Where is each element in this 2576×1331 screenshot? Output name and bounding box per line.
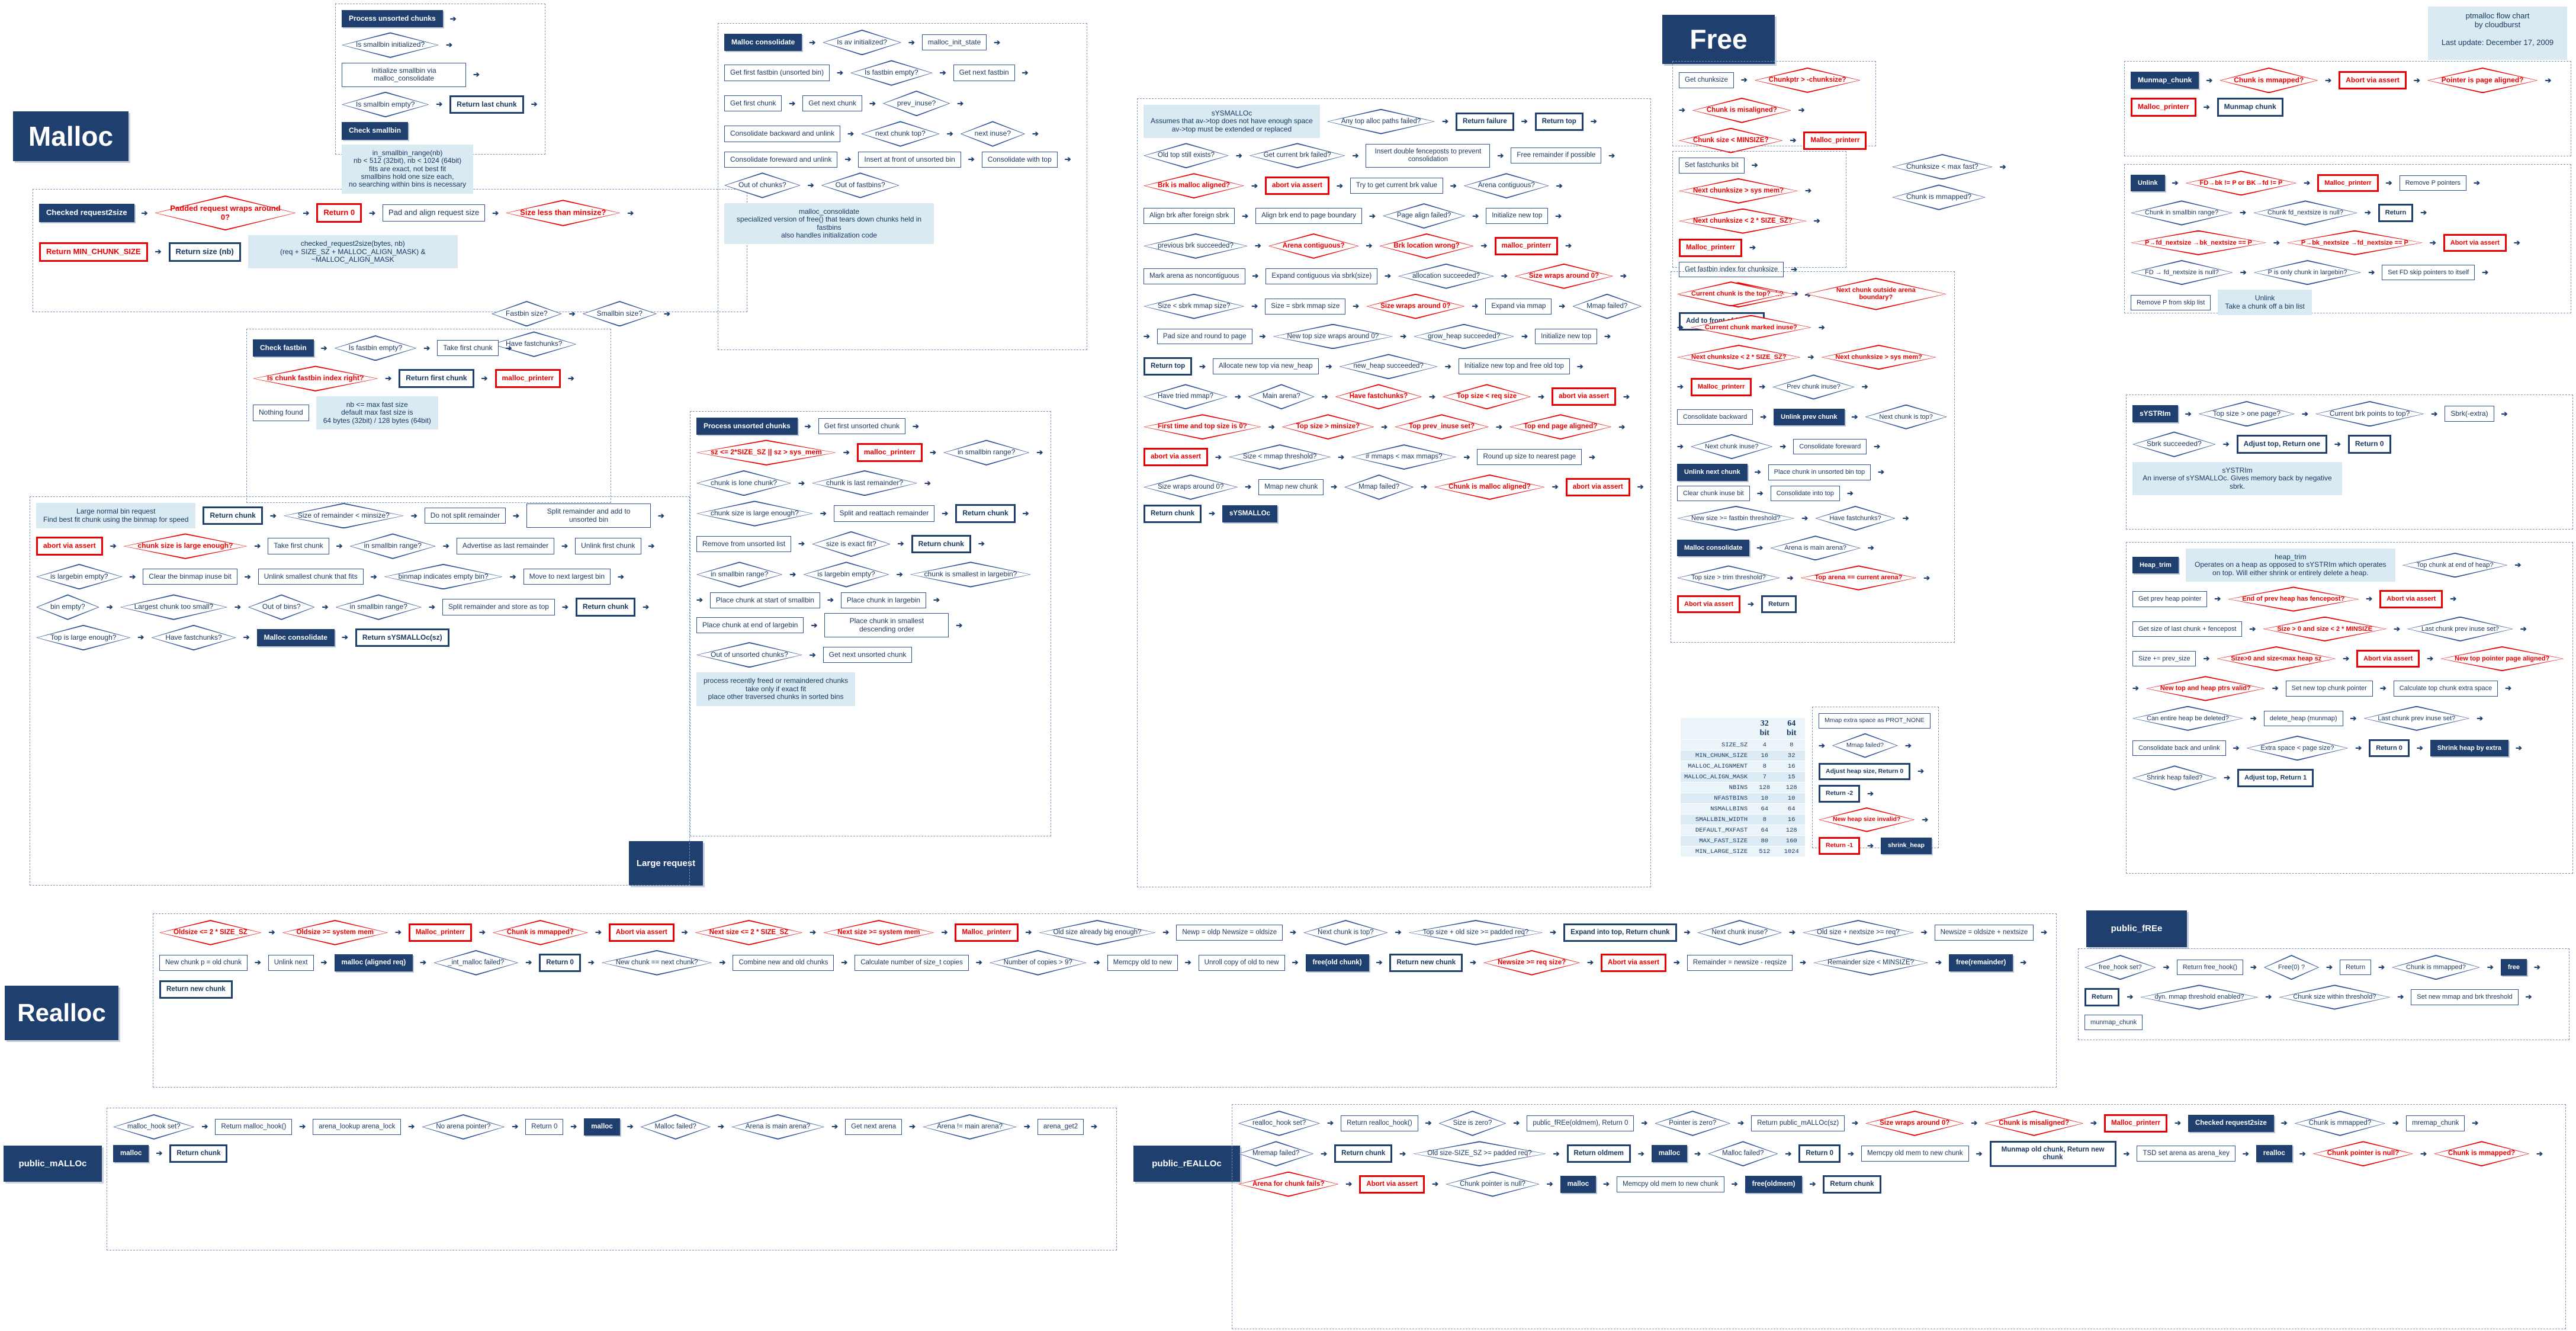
flow-arrow-icon: ➔ [1780, 442, 1786, 451]
flow-arrow-icon: ➔ [2514, 238, 2520, 248]
flow-arrow-icon: ➔ [1694, 1149, 1701, 1159]
decision-diamond-realloc-hook-set: realloc_hook set? [1238, 1111, 1320, 1136]
process-node-mmap-new-chunk: Mmap new chunk [1258, 479, 1324, 495]
flow-arrow-icon: ➔ [1976, 1149, 1983, 1159]
flow-arrow-icon: ➔ [1587, 958, 1594, 967]
subroutine-node-malloc-consolidate: Malloc consolidate [1677, 540, 1749, 556]
flow-arrow-icon: ➔ [481, 374, 488, 383]
flow-arrow-icon: ➔ [1215, 453, 1222, 462]
flow-arrow-icon: ➔ [1450, 181, 1457, 191]
terminal-node-return-chunk: Return chunk [1144, 505, 1202, 523]
constants-table-body: SIZE_SZ48MIN_CHUNK_SIZE1632MALLOC_ALIGNM… [1681, 740, 1805, 857]
flow-arrow-icon: ➔ [810, 650, 816, 660]
process-node-initialize-smallbin-via-malloc-consolida: Initialize smallbin via malloc_consolida… [342, 63, 466, 87]
process-node-place-chunk-in-smallest-descending-order: Place chunk in smallest descending order [824, 613, 949, 637]
decision-diamond-is-av-initialized: Is av initialized? [823, 30, 901, 55]
flow-arrow-icon: ➔ [1623, 392, 1630, 402]
constants-table-row: SMALLBIN_WIDTH816 [1681, 814, 1805, 825]
decision-diamond-size-sbrk-mmap-size: Size < sbrk mmap size? [1144, 294, 1244, 319]
banner-public-free-title: public_fREe [2086, 910, 2187, 947]
error-decision-diamond-brk-location-wrong: Brk location wrong? [1379, 233, 1473, 259]
error-decision-diamond-chunk-size-is-large-enough: chunk size is large enough? [124, 533, 248, 559]
flow-arrow-icon: ➔ [2392, 1118, 2399, 1128]
flow-arrow-icon: ➔ [924, 479, 931, 488]
note-box-sysmalloc-assumes-that-av-top-does-not-h: sYSMALLOc Assumes that av->top does not … [1144, 105, 1320, 138]
decision-diamond-smallbin-size: Smallbin size? [583, 301, 657, 326]
flow-arrow-icon: ➔ [588, 958, 595, 967]
flow-arrow-icon: ➔ [235, 602, 241, 612]
subroutine-node-free-oldmem: free(oldmem) [1745, 1176, 1803, 1193]
terminal-node-return-new-chunk: Return new chunk [159, 980, 233, 999]
process-node-initialize-new-top-and-free-old-top: Initialize new top and free old top [1459, 358, 1570, 374]
flowchart-canvas: ptmalloc flow chart by cloudburst Last u… [0, 0, 2576, 1331]
process-node-get-next-arena: Get next arena [845, 1119, 902, 1135]
flow-arrow-icon: ➔ [1923, 573, 1930, 583]
flow-arrow-icon: ➔ [2185, 409, 2192, 419]
flow-arrow-icon: ➔ [336, 541, 343, 551]
flow-arrow-icon: ➔ [1620, 271, 1627, 281]
terminal-node-return-chunk: Return chunk [955, 504, 1015, 522]
cluster-malloc-dispatch: Fastbin size?➔Smallbin size?➔Have fastch… [486, 295, 746, 332]
decision-diamond-main-arena: Main arena? [1248, 384, 1315, 409]
flow-arrow-icon: ➔ [2334, 440, 2341, 449]
flow-arrow-icon: ➔ [1852, 412, 1858, 422]
flow-arrow-icon: ➔ [1752, 161, 1758, 170]
cluster-realloc-flow: Oldsize <= 2 * SIZE_SZ➔Oldsize >= system… [153, 913, 2057, 1088]
process-node-move-to-next-largest-bin: Move to next largest bin [523, 569, 611, 585]
flow-arrow-icon: ➔ [2366, 594, 2372, 604]
decision-diamond-have-tried-mmap: Have tried mmap? [1144, 384, 1228, 409]
decision-diamond-chunk-is-mmapped: Chunk is mmapped? [1892, 184, 1986, 210]
flow-arrow-icon: ➔ [1260, 332, 1266, 341]
flow-arrow-icon: ➔ [2090, 1118, 2097, 1128]
flow-arrow-icon: ➔ [2272, 684, 2279, 693]
error-decision-diamond-new-top-and-heap-ptrs-valid: New top and heap ptrs valid? [2146, 676, 2265, 701]
error-decision-diamond-size-wraps-around-0: Size wraps around 0? [1515, 264, 1613, 289]
flow-arrow-icon: ➔ [1785, 1149, 1791, 1159]
decision-diamond-no-arena-pointer: No arena pointer? [422, 1114, 505, 1140]
process-node-public-free-oldmem-return-0: public_fREe(oldmem), Return 0 [1527, 1115, 1634, 1131]
flow-arrow-icon: ➔ [1935, 958, 1942, 967]
decision-diamond-malloc-hook-set: malloc_hook set? [113, 1114, 195, 1140]
flow-arrow-icon: ➔ [789, 99, 795, 108]
flow-arrow-icon: ➔ [510, 572, 516, 582]
flow-arrow-icon: ➔ [2350, 714, 2357, 723]
flow-arrow-icon: ➔ [1550, 928, 1556, 937]
error-node-return-min-chunk-size: Return MIN_CHUNK_SIZE [39, 242, 148, 262]
flow-arrow-icon: ➔ [1787, 573, 1794, 583]
constant-value: 128 [1751, 782, 1778, 793]
error-decision-diamond-sz-2-size-sz-sz-sys-mem: sz <= 2*SIZE_SZ || sz > sys_mem [696, 440, 836, 465]
decision-diamond-fd-fd-nextsize-is-null: FD → fd_nextsize is null? [2131, 260, 2233, 285]
decision-diamond-chunk-is-lone-chunk: chunk is lone chunk? [696, 470, 791, 496]
flow-arrow-icon: ➔ [2430, 238, 2436, 248]
flow-arrow-icon: ➔ [837, 68, 843, 78]
flow-arrow-icon: ➔ [1577, 362, 1583, 371]
flow-arrow-icon: ➔ [1251, 302, 1258, 311]
note-box-systrim-an-inverse-of-sysmalloc-gives-me: sYSTRIm An inverse of sYSMALLOc. Gives m… [2132, 462, 2342, 495]
process-node-get-size-of-last-chunk-fencepost: Get size of last chunk + fencepost [2132, 621, 2242, 637]
flow-arrow-icon: ➔ [2431, 409, 2437, 419]
error-node-abort-via-assert: abort via assert [1552, 387, 1616, 406]
flow-arrow-icon: ➔ [1921, 928, 1928, 937]
terminal-node-return-2: Return -2 [1819, 785, 1860, 803]
flow-arrow-icon: ➔ [2536, 1149, 2543, 1159]
flow-arrow-icon: ➔ [2397, 992, 2404, 1002]
flow-arrow-icon: ➔ [1209, 509, 1215, 518]
flow-arrow-icon: ➔ [1552, 482, 1559, 492]
constant-value: 64 [1751, 804, 1778, 814]
subroutine-node-free: free [2501, 959, 2527, 976]
error-decision-diamond-chunk-size-minsize: Chunk size < MINSIZE? [1679, 128, 1782, 153]
constant-value: 160 [1778, 836, 1805, 846]
decision-diamond-have-fastchunks: Have fastchunks? [151, 625, 236, 650]
terminal-node-return-0: Return 0 [539, 954, 581, 972]
terminal-node-return-chunk: Return chunk [576, 598, 635, 616]
flow-arrow-icon: ➔ [913, 422, 919, 431]
cluster-free-checks: Get chunksize➔Chunkptr > -chunksize?➔Chu… [1672, 61, 1876, 146]
error-decision-diamond-oldsize-system-mem: Oldsize >= system mem [282, 920, 388, 945]
decision-diamond-mmaps-max-mmaps: # mmaps < max mmaps? [1351, 444, 1456, 470]
decision-diamond-last-chunk-prev-inuse-set: Last chunk prev inuse set? [2363, 706, 2469, 731]
error-decision-diamond-end-of-prev-heap-has-fencepost: End of prev heap has fencepost? [2228, 586, 2359, 611]
decision-diamond-int-malloc-failed: _int_malloc failed? [433, 950, 518, 976]
error-decision-diamond-size-wraps-around-0: Size wraps around 0? [1865, 1111, 1964, 1136]
flow-arrow-icon: ➔ [525, 958, 532, 967]
flow-arrow-icon: ➔ [1497, 151, 1504, 161]
decision-diamond-sbrk-succeeded: Sbrk succeeded? [2132, 431, 2216, 457]
decision-diamond-size-is-zero: Size is zero? [1439, 1111, 1507, 1136]
error-decision-diamond-top-end-page-aligned: Top end page aligned? [1509, 414, 1611, 440]
terminal-node-return-first-chunk: Return first chunk [399, 369, 474, 387]
decision-diamond-top-size-trim-threshold: Top size > trim threshold? [1677, 565, 1780, 590]
flow-arrow-icon: ➔ [908, 38, 915, 47]
process-node-round-up-size-to-nearest-page: Round up size to nearest page [1477, 449, 1582, 465]
process-node-get-first-fastbin-unsorted-bin: Get first fastbin (unsorted bin) [724, 65, 830, 81]
error-decision-diamond-next-chunksize-sys-mem: Next chunksize > sys mem? [1821, 345, 1936, 370]
terminal-node-return-chunk: Return chunk [203, 506, 262, 525]
process-node-remove-p-pointers: Remove P pointers [2400, 175, 2466, 191]
flow-arrow-icon: ➔ [2163, 963, 2170, 972]
terminal-node-return-chunk: Return chunk [1334, 1144, 1392, 1163]
terminal-node-return-chunk: Return chunk [1823, 1175, 1881, 1194]
process-node-return: Return [2340, 960, 2371, 975]
flow-arrow-icon: ➔ [1559, 302, 1565, 311]
banner-malloc-title: Malloc [13, 111, 129, 161]
flow-arrow-icon: ➔ [255, 958, 261, 967]
constants-table-row: NFASTBINS1010 [1681, 793, 1805, 804]
flow-arrow-icon: ➔ [1819, 741, 1825, 751]
cluster-munmap-chunk: Munmap_chunk➔Chunk is mmapped?➔Abort via… [2124, 61, 2571, 156]
error-decision-diamond-new-top-pointer-page-aligned: New top pointer page aligned? [2440, 646, 2564, 671]
constant-value: 15 [1778, 772, 1805, 782]
flow-arrow-icon: ➔ [2299, 1149, 2306, 1159]
flow-arrow-icon: ➔ [618, 572, 624, 582]
error-node-abort-via-assert: Abort via assert [2443, 234, 2507, 252]
decision-diamond-arena-main-arena: Arena != main arena? [923, 1114, 1017, 1140]
flow-arrow-icon: ➔ [110, 541, 117, 551]
process-node-return-malloc-hook: Return malloc_hook() [215, 1119, 292, 1135]
terminal-node-return: Return [2378, 204, 2413, 222]
terminal-node-return-size-nb: Return size (nb) [169, 242, 241, 262]
flow-arrow-icon: ➔ [789, 570, 796, 579]
subroutine-node-checked-request2size: Checked request2size [39, 204, 134, 222]
flow-arrow-icon: ➔ [2378, 963, 2385, 972]
process-node-unroll-copy-of-old-to-new: Unroll copy of old to new [1199, 955, 1285, 971]
flow-arrow-icon: ➔ [1185, 958, 1191, 967]
flow-arrow-icon: ➔ [1290, 928, 1296, 937]
process-node-advertise-as-last-remainder: Advertise as last remainder [457, 538, 554, 554]
process-node-consolidate-foreward: Consolidate foreward [1793, 439, 1867, 454]
flow-arrow-icon: ➔ [2000, 162, 2006, 172]
flow-arrow-icon: ➔ [1737, 1118, 1744, 1128]
error-decision-diamond-chunk-is-mmapped: Chunk is mmapped? [493, 920, 588, 945]
process-node-get-next-unsorted-chunk: Get next unsorted chunk [823, 647, 913, 663]
flow-arrow-icon: ➔ [2514, 560, 2521, 570]
constant-value: 64 [1751, 825, 1778, 836]
flow-arrow-icon: ➔ [1917, 766, 1924, 776]
terminal-node-return-new-chunk: Return new chunk [1389, 954, 1463, 972]
constants-table-col-header: 64 bit [1778, 718, 1805, 740]
terminal-node-adjust-top-return-one: Adjust top, Return one [2237, 435, 2327, 453]
decision-diamond-largest-chunk-too-small: Largest chunk too small? [120, 594, 227, 620]
note-box-checked-request2size-bytes-nb-req-size-s: checked_request2size(bytes, nb) (req + S… [248, 235, 458, 268]
process-node-get-first-unsorted-chunk: Get first unsorted chunk [818, 418, 905, 434]
subroutine-node-unlink-next-chunk: Unlink next chunk [1677, 464, 1748, 480]
flow-arrow-icon: ➔ [947, 129, 953, 139]
terminal-node-return-top: Return top [1144, 357, 1192, 376]
constant-value: 8 [1751, 761, 1778, 772]
flow-arrow-icon: ➔ [321, 344, 327, 353]
decision-diamond-chunk-is-mmapped: Chunk is mmapped? [2295, 1111, 2385, 1136]
flow-arrow-icon: ➔ [2020, 958, 2026, 967]
error-node-malloc-printerr: Malloc_printerr [1679, 239, 1742, 257]
process-node-place-chunk-at-start-of-smallbin: Place chunk at start of smallbin [710, 592, 820, 608]
error-node-abort-via-assert: Abort via assert [2339, 71, 2407, 89]
flow-arrow-icon: ➔ [2204, 102, 2210, 112]
flow-arrow-icon: ➔ [1867, 841, 1874, 851]
flow-arrow-icon: ➔ [1874, 442, 1880, 451]
constant-value: 1024 [1778, 846, 1805, 857]
error-decision-diamond-padded-request-wraps-around-0: Padded request wraps around 0? [155, 195, 295, 230]
cluster-check-fastbin: Check fastbin➔Is fastbin empty?➔Take fir… [246, 329, 611, 503]
flow-arrow-icon: ➔ [1679, 105, 1685, 115]
flow-arrow-icon: ➔ [1790, 136, 1796, 145]
process-node-split-remainder-and-add-to-unsorted-bin: Split remainder and add to unsorted bin [526, 503, 651, 528]
cluster-checked-request2size: Checked request2size➔Padded request wrap… [33, 189, 747, 312]
constants-table-row: NSMALLBINS6464 [1681, 804, 1805, 814]
constant-name: NFASTBINS [1681, 793, 1751, 804]
process-node-delete-heap-munmap: delete_heap (munmap) [2264, 711, 2343, 726]
error-decision-diamond-size-0-and-size-2-minsize: Size > 0 and size < 2 * MINSIZE [2263, 617, 2387, 642]
flow-arrow-icon: ➔ [1553, 1149, 1560, 1159]
decision-diamond-next-chunk-top: next chunk top? [861, 121, 940, 146]
flow-arrow-icon: ➔ [627, 1122, 634, 1131]
flow-arrow-icon: ➔ [1618, 422, 1625, 432]
credit-note: ptmalloc flow chart by cloudburst Last u… [2428, 7, 2567, 60]
terminal-node-return-sysmalloc-sz: Return sYSMALLOc(sz) [355, 628, 449, 647]
decision-diamond-malloc-failed: Malloc failed? [641, 1114, 711, 1140]
flow-arrow-icon: ➔ [978, 539, 985, 549]
decision-diamond-new-chunk-next-chunk: New chunk == next chunk? [602, 950, 712, 976]
decision-diamond-fastbin-size: Fastbin size? [492, 301, 562, 326]
subroutine-node-malloc: malloc [584, 1118, 619, 1136]
flow-arrow-icon: ➔ [1589, 453, 1595, 462]
flow-arrow-icon: ➔ [942, 928, 948, 937]
decision-diamond-chunk-in-smallbin-range: Chunk in smallbin range? [2131, 200, 2233, 225]
flow-arrow-icon: ➔ [811, 621, 817, 630]
decision-diamond-current-brk-points-to-top: Current brk points to top? [2315, 401, 2424, 426]
flow-arrow-icon: ➔ [2365, 208, 2371, 217]
decision-diamond-mremap-failed: Mremap failed? [1238, 1141, 1313, 1166]
flow-arrow-icon: ➔ [1868, 543, 1874, 553]
flow-arrow-icon: ➔ [1591, 117, 1597, 126]
decision-diamond-next-chunk-inuse: Next chunk inuse? [1697, 920, 1782, 945]
constants-table-col-header: 32 bit [1751, 718, 1778, 740]
error-node-abort-via-assert: abort via assert [1265, 177, 1329, 195]
constants-table: 32 bit64 bit SIZE_SZ48MIN_CHUNK_SIZE1632… [1681, 718, 1805, 857]
flow-arrow-icon: ➔ [957, 99, 963, 108]
process-node-pad-size-and-round-to-page: Pad size and round to page [1157, 329, 1252, 345]
flow-arrow-icon: ➔ [2233, 743, 2240, 753]
flow-arrow-icon: ➔ [933, 595, 940, 605]
flow-arrow-icon: ➔ [2474, 178, 2480, 188]
decision-diamond-old-size-already-big-enough: Old size already big enough? [1039, 920, 1155, 945]
process-node-split-remainder-and-store-as-top: Split remainder and store as top [442, 599, 555, 615]
terminal-node-return-chunk: Return chunk [169, 1144, 227, 1163]
process-node-memcpy-old-mem-to-new-chunk: Memcpy old mem to new chunk [1861, 1146, 1969, 1162]
decision-diamond-is-largebin-empty: is largebin empty? [803, 562, 889, 587]
constant-value: 8 [1751, 814, 1778, 825]
decision-diamond-mmap-failed: Mmap failed? [1572, 294, 1642, 319]
flow-arrow-icon: ➔ [831, 1122, 838, 1131]
decision-diamond-size-is-exact-fit: size is exact fit? [812, 531, 891, 557]
decision-diamond-malloc-failed: Malloc failed? [1708, 1141, 1778, 1166]
flow-arrow-icon: ➔ [129, 572, 136, 582]
process-node-initialize-new-top: Initialize new top [1535, 329, 1597, 345]
flow-arrow-icon: ➔ [1677, 382, 1684, 392]
flow-arrow-icon: ➔ [810, 928, 816, 937]
flow-arrow-icon: ➔ [1026, 928, 1032, 937]
error-decision-diamond-top-prev-inuse-set: Top prev_inuse set? [1395, 414, 1489, 440]
process-node-expand-contiguous-via-sbrk-size: Expand contiguous via sbrk(size) [1265, 268, 1377, 284]
flow-arrow-icon: ➔ [1338, 453, 1344, 462]
flow-arrow-icon: ➔ [1792, 289, 1798, 299]
flow-arrow-icon: ➔ [2326, 963, 2333, 972]
flow-arrow-icon: ➔ [2477, 714, 2483, 723]
flow-arrow-icon: ➔ [1470, 958, 1476, 967]
decision-diamond-grow-heap-succeeded: grow_heap succeeded? [1414, 324, 1514, 349]
flow-arrow-icon: ➔ [1242, 211, 1248, 221]
flow-arrow-icon: ➔ [1421, 482, 1427, 492]
flow-arrow-icon: ➔ [1327, 1118, 1334, 1128]
note-box-nb-max-fast-size-default-max-fast-size-i: nb <= max fast size default max fast siz… [316, 396, 438, 429]
flow-arrow-icon: ➔ [2482, 268, 2488, 277]
decision-diamond-pointer-is-zero: Pointer is zero? [1655, 1111, 1730, 1136]
decision-diamond-top-size-one-page: Top size > one page? [2199, 401, 2295, 426]
banner-realloc-title: Realloc [5, 986, 118, 1040]
flow-arrow-icon: ➔ [1429, 392, 1435, 402]
flow-arrow-icon: ➔ [1199, 362, 1206, 371]
process-node-take-first-chunk: Take first chunk [268, 538, 329, 554]
flow-arrow-icon: ➔ [1472, 302, 1478, 311]
subroutine-node-malloc: malloc [1652, 1145, 1687, 1162]
process-node-split-and-reattach-remainder: Split and reattach remainder [834, 505, 935, 521]
flow-arrow-icon: ➔ [155, 247, 162, 256]
process-node-align-brk-end-to-page-boundary: Align brk end to page boundary [1255, 208, 1362, 224]
decision-diamond-bin-empty: bin empty? [36, 594, 99, 620]
error-node-malloc-printerr: Malloc_printerr [2317, 174, 2378, 192]
error-decision-diamond-current-chunk-marked-inuse: Current chunk marked inuse? [1691, 315, 1811, 340]
process-node-do-not-split-remainder: Do not split remainder [425, 508, 506, 524]
flow-arrow-icon: ➔ [107, 602, 113, 612]
flow-arrow-icon: ➔ [1094, 958, 1100, 967]
flow-arrow-icon: ➔ [2132, 684, 2139, 693]
banner-free-title: Free [1662, 15, 1775, 64]
flow-arrow-icon: ➔ [371, 572, 377, 582]
flow-arrow-icon: ➔ [1801, 514, 1808, 523]
error-decision-diamond-size-wraps-around-0: Size wraps around 0? [1366, 294, 1464, 319]
flow-arrow-icon: ➔ [1472, 211, 1479, 221]
decision-diamond-old-size-size-sz-padded-req: Old size-SIZE_SZ >= padded req? [1413, 1141, 1546, 1166]
error-decision-diamond-chunk-pointer-is-null: Chunk pointer is null? [2313, 1141, 2413, 1166]
flow-arrow-icon: ➔ [1521, 117, 1528, 126]
flow-arrow-icon: ➔ [321, 958, 327, 967]
process-node-munmap-chunk: munmap_chunk [2084, 1015, 2143, 1030]
process-node-get-prev-heap-pointer: Get prev heap pointer [2132, 591, 2207, 607]
terminal-node-return-0: Return 0 [1798, 1144, 1841, 1163]
process-node-return-free-hook: Return free_hook() [2177, 960, 2243, 975]
terminal-node-return-0: Return 0 [2348, 435, 2391, 453]
flow-arrow-icon: ➔ [342, 633, 348, 642]
error-decision-diamond-next-size-system-mem: Next size >= system mem [823, 920, 934, 945]
process-node-mark-arena-as-noncontiguous: Mark arena as noncontiguous [1144, 268, 1245, 284]
decision-diamond-is-largebin-empty: is largebin empty? [36, 564, 122, 589]
flow-arrow-icon: ➔ [1677, 323, 1684, 332]
decision-diamond-extra-space-page-size: Extra space < page size? [2247, 736, 2349, 761]
constants-table-row: SIZE_SZ48 [1681, 740, 1805, 751]
flow-arrow-icon: ➔ [531, 100, 538, 109]
cluster-sysmalloc: sYSMALLOc Assumes that av->top does not … [1137, 98, 1651, 887]
flow-arrow-icon: ➔ [1445, 362, 1451, 371]
constant-value: 7 [1751, 772, 1778, 782]
process-node-set-new-mmap-and-brk-threshold: Set new mmap and brk threshold [2411, 989, 2518, 1005]
flow-arrow-icon: ➔ [1376, 958, 1383, 967]
decision-diamond-is-smallbin-initialized: Is smallbin initialized? [342, 32, 439, 57]
constant-value: 128 [1778, 825, 1805, 836]
error-decision-diamond-new-heap-size-invalid: New heap size invalid? [1819, 807, 1915, 832]
subroutine-node-process-unsorted-chunks: Process unsorted chunks [696, 418, 798, 435]
flow-arrow-icon: ➔ [968, 155, 975, 164]
flow-arrow-icon: ➔ [682, 928, 688, 937]
process-node-expand-via-mmap: Expand via mmap [1485, 299, 1552, 315]
error-decision-diamond-p-fd-nextsize-bk-nextsize-p: P→fd_nextsize →bk_nextsize == P [2131, 230, 2266, 255]
decision-diamond-last-chunk-prev-inuse-set: Last chunk prev inuse set? [2407, 617, 2513, 642]
flow-arrow-icon: ➔ [1971, 1118, 1977, 1128]
flow-arrow-icon: ➔ [1022, 68, 1029, 78]
decision-diamond-is-smallbin-empty: Is smallbin empty? [342, 92, 429, 117]
flow-arrow-icon: ➔ [1862, 382, 1868, 392]
flow-arrow-icon: ➔ [2281, 1118, 2288, 1128]
flow-arrow-icon: ➔ [2304, 178, 2310, 188]
process-node-set-fastchunks-bit: Set fastchunks bit [1679, 158, 1745, 174]
flow-arrow-icon: ➔ [909, 1122, 916, 1131]
flow-arrow-icon: ➔ [2325, 76, 2331, 85]
error-decision-diamond-have-fastchunks: Have fastchunks? [1335, 384, 1422, 409]
process-node-align-brk-after-foreign-sbrk: Align brk after foreign sbrk [1144, 208, 1235, 224]
decision-diamond-new-top-size-wraps-around-0: New top size wraps around 0? [1273, 324, 1393, 349]
flow-arrow-icon: ➔ [994, 38, 1000, 47]
